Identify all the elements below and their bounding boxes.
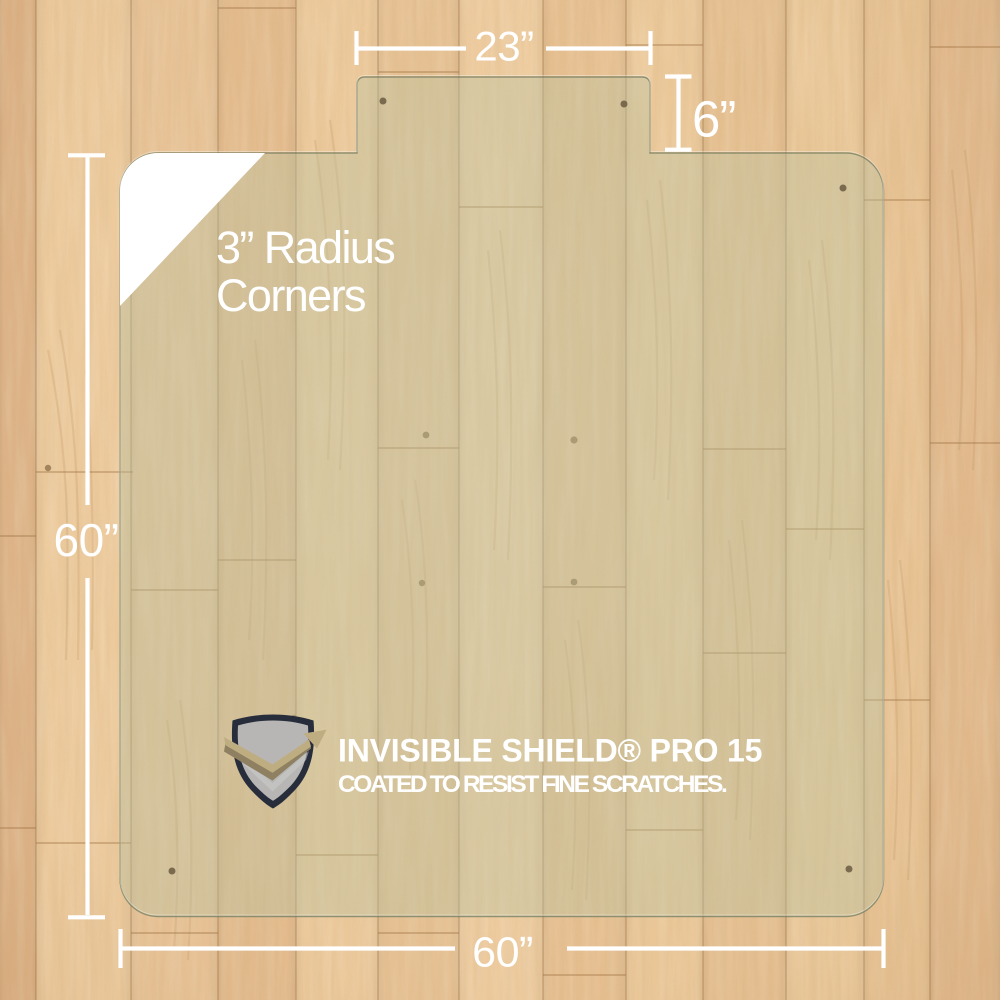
svg-text:60”: 60” — [472, 929, 533, 977]
svg-text:6”: 6” — [692, 91, 735, 148]
svg-text:COATED TO RESIST FINE SCRATCHE: COATED TO RESIST FINE SCRATCHES. — [338, 771, 727, 798]
svg-text:60”: 60” — [54, 514, 119, 566]
svg-text:Corners: Corners — [216, 270, 365, 321]
svg-text:INVISIBLE SHIELD® PRO 15: INVISIBLE SHIELD® PRO 15 — [338, 733, 762, 769]
svg-text:23”: 23” — [474, 23, 533, 70]
svg-text:3” Radius: 3” Radius — [216, 222, 394, 273]
